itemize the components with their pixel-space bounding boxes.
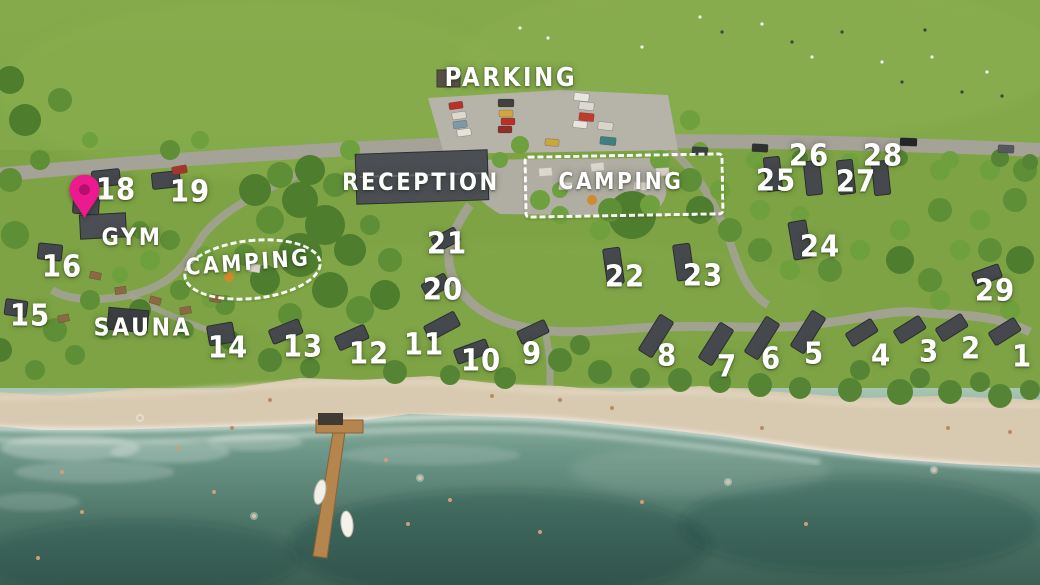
cabin-label-6: 6 [761, 342, 781, 377]
camping-east-label: Camping [558, 169, 683, 195]
cabin-label-12: 12 [349, 337, 389, 372]
cabin-label-14: 14 [208, 331, 248, 366]
cabin-label-8: 8 [657, 339, 677, 374]
gym-label: Gym [101, 223, 162, 251]
cabin-label-5: 5 [804, 337, 824, 372]
parking-label: Parking [445, 63, 578, 93]
cabin-label-22: 22 [605, 260, 645, 295]
cabin-label-29: 29 [975, 274, 1015, 309]
cabin-label-9: 9 [522, 337, 542, 372]
cabin-label-7: 7 [717, 350, 737, 385]
cabin-label-24: 24 [800, 230, 840, 265]
cabin-label-28: 28 [863, 139, 903, 174]
cabin-label-3: 3 [919, 335, 939, 370]
cabin-label-23: 23 [683, 259, 723, 294]
cabin-label-10: 10 [461, 344, 501, 379]
cabin-label-4: 4 [871, 339, 891, 374]
cabin-label-21: 21 [427, 227, 467, 262]
cabin-label-13: 13 [283, 330, 323, 365]
cabin-label-26: 26 [789, 139, 829, 174]
cabin-label-11: 11 [404, 328, 444, 363]
cabin-label-16: 16 [42, 250, 82, 285]
cabin-label-15: 15 [10, 299, 50, 334]
cabin-label-20: 20 [423, 273, 463, 308]
location-pin-icon[interactable] [66, 173, 103, 220]
cabin-label-1: 1 [1012, 340, 1032, 375]
reception-label: Reception [342, 168, 500, 196]
sauna-label: Sauna [94, 313, 193, 342]
cabin-label-2: 2 [961, 332, 981, 367]
cabin-label-19: 19 [170, 175, 210, 210]
resort-map: Parking Reception Camping Camping Gym Sa… [0, 0, 1040, 585]
